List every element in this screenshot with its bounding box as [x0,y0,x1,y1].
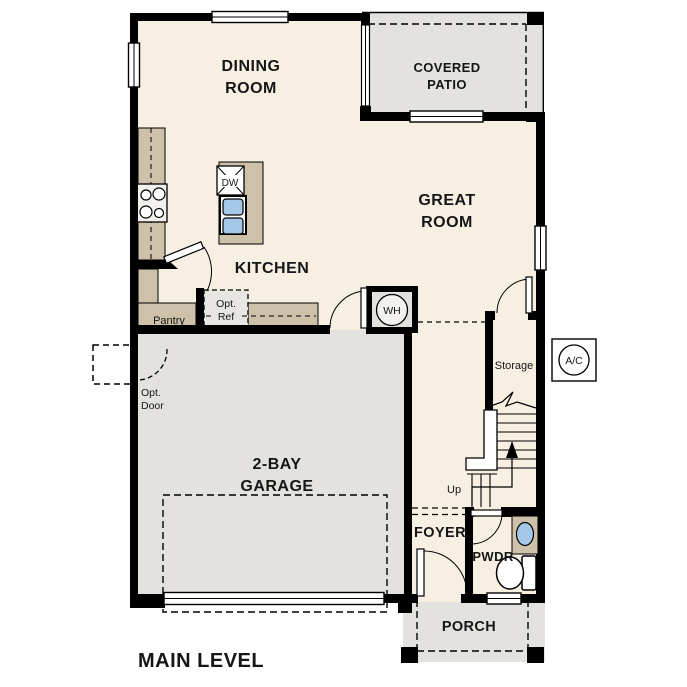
porch-post-right [527,647,544,663]
wall-front-right [519,594,545,603]
pwdr-label: PWDR [472,549,514,564]
sink-basin [223,218,243,234]
opt-door-label: Door [141,400,164,412]
garage-label: 2-BAY [252,456,301,473]
wall-greatroom-north-right [481,112,528,121]
wall-greatroom-north-left [360,112,412,121]
wall-pantry-stub [130,260,168,269]
garage-label: GARAGE [240,478,313,495]
great-room-label: GREAT [418,192,475,209]
patio-sliding-door [410,111,483,122]
wall-garage-se-corner [398,594,412,613]
pantry-label: Pantry [153,315,185,327]
patio-post [527,12,543,25]
window-dining-top [212,12,288,23]
wall-patio-divider-top [361,13,370,25]
wall-front-mid [461,594,490,603]
window-greatroom-right [535,226,546,270]
wall-left [130,13,138,603]
window-patio-divider [362,25,370,106]
opt-door-label: Opt. [141,387,161,399]
opt-ref-label: Ref [218,311,234,323]
burner [153,188,165,200]
kitchen-counter-bottom [248,303,318,327]
wall-garage-east [404,325,412,602]
foyer-label: FOYER [414,525,466,541]
plan-title: MAIN LEVEL [138,650,264,672]
porch-post-left [401,647,418,663]
kitchen-label: KITCHEN [235,260,310,277]
sink-basin [223,199,243,215]
wall-garage-sw-corner [130,594,165,608]
window-porch-front [487,593,521,604]
covered-patio-label: PATIO [427,77,467,92]
burner [155,209,164,218]
burner [140,206,152,218]
garage-door [164,593,384,605]
storage-label: Storage [495,360,534,372]
stairs-up-label: Up [447,484,461,496]
burner [141,190,151,200]
pwdr-sink [517,523,534,546]
opt-ref-label: Opt. [216,298,236,310]
great-room-label: ROOM [421,214,473,231]
floor-plan-drawing: DINING ROOM COVERED PATIO GREAT ROOM KIT… [0,0,687,687]
floor-plan-page: DINING ROOM COVERED PATIO GREAT ROOM KIT… [0,0,687,687]
wall-storage-west [485,311,493,412]
covered-patio-label: COVERED [413,60,480,75]
dining-room-label: ROOM [225,80,277,97]
wall-pantry-east-stub [196,288,204,328]
water-heater-label: WH [383,305,401,317]
dishwasher-label: DW [222,178,239,189]
window-dining-left [129,43,140,87]
ac-label: A/C [565,355,583,367]
dining-room-label: DINING [222,58,281,75]
porch-label: PORCH [442,619,496,635]
